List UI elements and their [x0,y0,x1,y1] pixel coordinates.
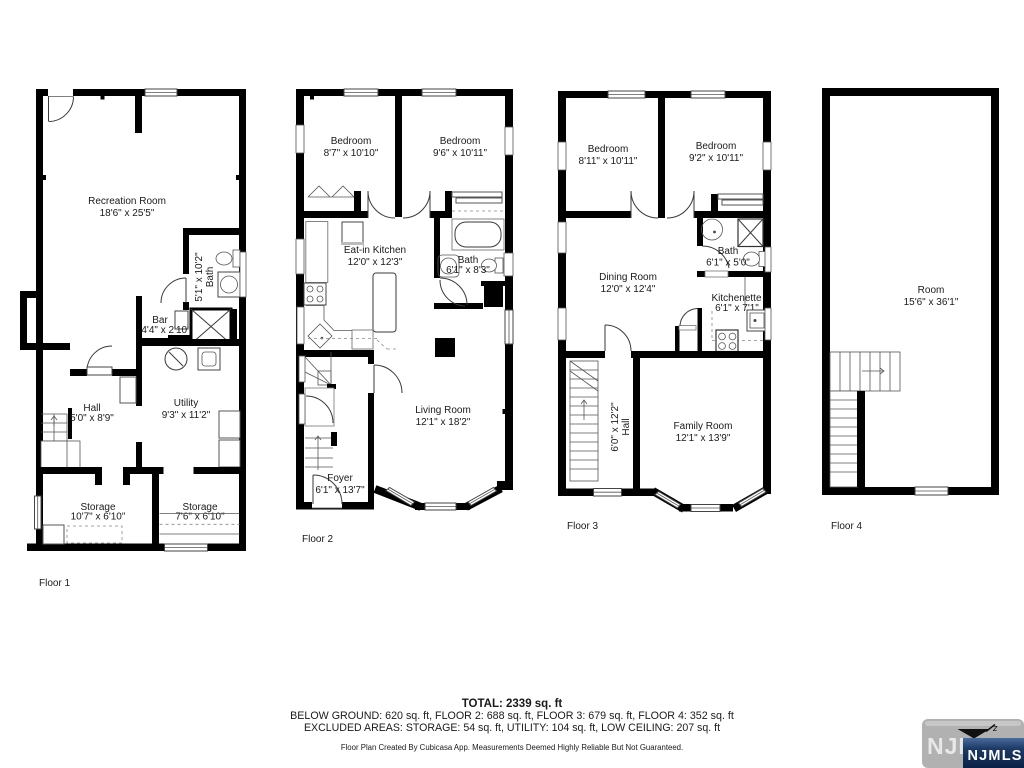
svg-text:Bath: Bath [718,246,739,257]
svg-text:EXCLUDED AREAS: STORAGE: 54 sq: EXCLUDED AREAS: STORAGE: 54 sq. ft, UTIL… [304,722,720,734]
svg-text:18'6" x 25'5": 18'6" x 25'5" [100,208,155,219]
svg-text:4'4" x 2'10": 4'4" x 2'10" [141,325,191,336]
svg-text:6'1" x 13'7": 6'1" x 13'7" [315,485,365,496]
svg-text:9'6" x 10'11": 9'6" x 10'11" [433,148,488,159]
svg-text:Floor 2: Floor 2 [302,534,334,545]
svg-text:12'1" x 13'9": 12'1" x 13'9" [676,433,731,444]
svg-text:Family Room: Family Room [674,421,733,432]
svg-text:Living Room: Living Room [415,405,471,416]
svg-text:Floor 4: Floor 4 [831,521,863,532]
svg-text:TOTAL: 2339 sq. ft: TOTAL: 2339 sq. ft [462,698,563,710]
svg-text:Hall: Hall [621,418,632,435]
svg-text:5'1" x 10'2": 5'1" x 10'2" [194,252,205,302]
svg-text:12'0" x 12'3": 12'0" x 12'3" [348,257,403,268]
svg-text:5'0" x 8'9": 5'0" x 8'9" [70,413,114,424]
svg-text:6'1" x 8'3": 6'1" x 8'3" [446,265,490,276]
svg-text:Bedroom: Bedroom [588,144,629,155]
svg-text:Room: Room [918,285,945,296]
svg-text:Bedroom: Bedroom [331,136,372,147]
svg-text:Floor 1: Floor 1 [39,578,71,589]
svg-text:z: z [992,723,998,733]
svg-text:6'0" x 12'2": 6'0" x 12'2" [610,402,621,452]
svg-text:10'7" x 6'10": 10'7" x 6'10" [71,512,126,523]
svg-text:Foyer: Foyer [327,473,353,484]
svg-text:Bedroom: Bedroom [440,136,481,147]
svg-text:Bedroom: Bedroom [696,141,737,152]
svg-text:12'0" x 12'4": 12'0" x 12'4" [601,284,656,295]
svg-text:NJMLS: NJMLS [968,748,1023,764]
svg-text:Floor Plan Created By Cubicasa: Floor Plan Created By Cubicasa App. Meas… [341,743,683,752]
svg-text:8'11" x 10'11": 8'11" x 10'11" [579,156,638,167]
svg-text:6'1" x 5'0": 6'1" x 5'0" [706,258,750,269]
svg-text:9'2" x 10'11": 9'2" x 10'11" [689,153,744,164]
svg-text:12'1" x 18'2": 12'1" x 18'2" [416,417,471,428]
svg-text:Eat-in Kitchen: Eat-in Kitchen [344,245,406,256]
svg-text:BELOW GROUND: 620 sq. ft, FLOO: BELOW GROUND: 620 sq. ft, FLOOR 2: 688 s… [290,710,734,722]
svg-text:Bath: Bath [205,267,216,288]
svg-text:Utility: Utility [174,398,198,409]
svg-text:8'7" x 10'10": 8'7" x 10'10" [324,148,379,159]
svg-text:Floor 3: Floor 3 [567,521,599,532]
svg-text:9'3" x 11'2": 9'3" x 11'2" [162,410,211,421]
svg-text:15'6" x 36'1": 15'6" x 36'1" [904,297,959,308]
svg-text:Recreation Room: Recreation Room [88,196,166,207]
svg-text:Dining Room: Dining Room [599,272,657,283]
